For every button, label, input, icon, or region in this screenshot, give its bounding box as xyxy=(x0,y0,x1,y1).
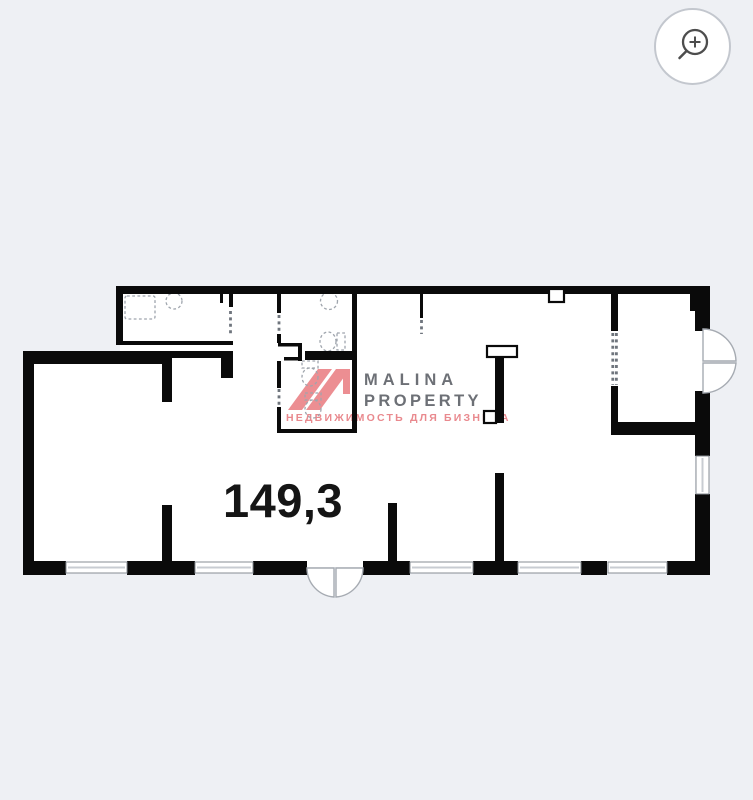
window xyxy=(410,562,473,573)
watermark-tagline: НЕДВИЖИМОСТЬ ДЛЯ БИЗНЕСА xyxy=(286,412,511,424)
interior-floor xyxy=(30,290,695,565)
entrance-door-right xyxy=(693,329,736,393)
wc-counter xyxy=(305,351,352,360)
floorplan-viewer: MALINA PROPERTY НЕДВИЖИМОСТЬ ДЛЯ БИЗНЕСА xyxy=(0,0,753,800)
watermark-brand-line1: MALINA xyxy=(364,371,458,389)
wall-pier xyxy=(549,289,564,302)
watermark-brand-line2: PROPERTY xyxy=(364,392,482,410)
entrance-door-bottom xyxy=(307,561,363,597)
window xyxy=(696,456,709,494)
window xyxy=(66,562,127,573)
area-label: 149,3 xyxy=(223,474,343,527)
floor-plan-image: MALINA PROPERTY НЕДВИЖИМОСТЬ ДЛЯ БИЗНЕСА xyxy=(0,0,753,800)
t-column-cap xyxy=(487,346,517,357)
window xyxy=(195,562,253,573)
zoom-in-button[interactable] xyxy=(654,8,731,85)
window xyxy=(608,562,667,573)
t-column-flange xyxy=(484,411,496,423)
magnifier-plus-icon xyxy=(670,24,716,70)
window xyxy=(518,562,581,573)
